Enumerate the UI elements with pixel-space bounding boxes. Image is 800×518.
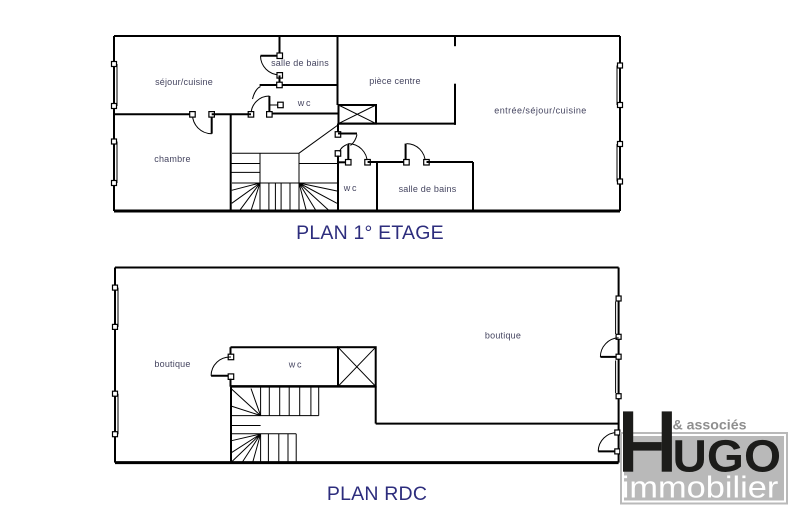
- svg-text:chambre: chambre: [154, 154, 190, 164]
- svg-text:séjour/cuisine: séjour/cuisine: [155, 77, 213, 87]
- svg-text:entrée/séjour/cuisine: entrée/séjour/cuisine: [494, 106, 587, 116]
- svg-text:PLAN RDC: PLAN RDC: [327, 483, 427, 505]
- svg-text:boutique: boutique: [154, 359, 190, 369]
- svg-text:immobilier: immobilier: [622, 471, 779, 505]
- svg-text:salle de bains: salle de bains: [399, 184, 457, 194]
- svg-text:wc: wc: [288, 360, 304, 370]
- svg-text:pièce centre: pièce centre: [369, 76, 420, 86]
- svg-text:& associés: & associés: [673, 417, 747, 432]
- svg-text:boutique: boutique: [485, 331, 521, 341]
- svg-text:salle de bains: salle de bains: [271, 58, 329, 68]
- svg-text:wc: wc: [343, 183, 359, 193]
- svg-text:wc: wc: [297, 98, 313, 108]
- svg-text:PLAN 1° ETAGE: PLAN 1° ETAGE: [296, 222, 444, 244]
